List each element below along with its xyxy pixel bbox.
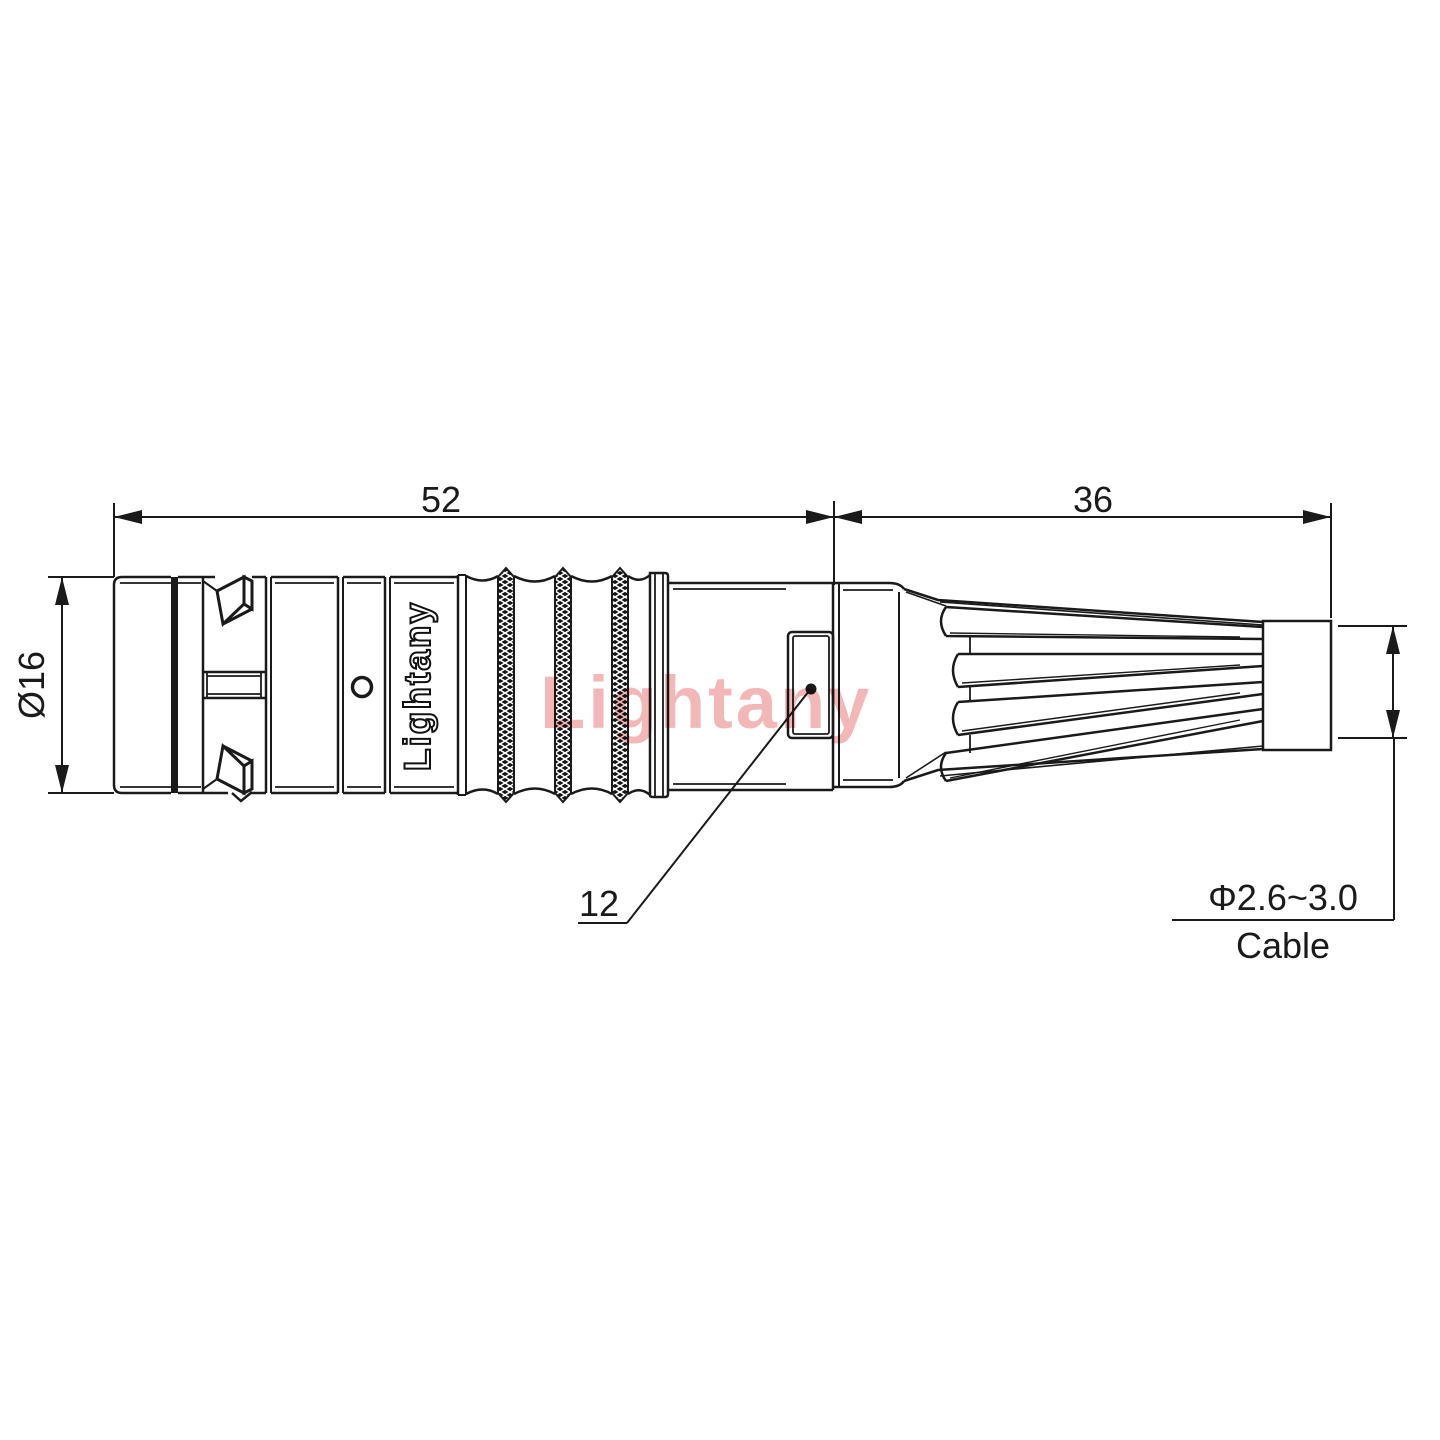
brand-vertical-text: Lightany bbox=[397, 601, 438, 771]
arrowhead-icon bbox=[55, 577, 69, 605]
dim-label-outer-diameter: Ø16 bbox=[11, 651, 52, 719]
arrowhead-icon bbox=[55, 765, 69, 793]
dim-label-boot-length: 36 bbox=[1073, 479, 1113, 520]
fin-slot bbox=[941, 709, 1263, 781]
strain-relief-fins bbox=[904, 589, 1263, 781]
dim-label-coupling-size: 12 bbox=[579, 883, 619, 924]
arrowhead-icon bbox=[1303, 510, 1331, 524]
fin-slot bbox=[953, 654, 1263, 687]
dim-boot-length: 36 bbox=[834, 479, 1331, 618]
latch-carrier bbox=[203, 577, 271, 801]
latch-tab-top bbox=[203, 577, 252, 624]
watermark-text: Lightany bbox=[540, 660, 860, 745]
dim-label-cable-word: Cable bbox=[1236, 925, 1330, 966]
front-edge-band bbox=[171, 577, 178, 793]
technical-drawing-page: 52 36 Ø16 12 bbox=[0, 0, 1440, 1440]
arrowhead-icon bbox=[1386, 710, 1400, 738]
brand-band: Lightany bbox=[390, 575, 466, 795]
knurl-band bbox=[498, 568, 514, 802]
dim-body-length: 52 bbox=[114, 479, 834, 585]
coupling-ring bbox=[271, 577, 390, 793]
connector-front-shell bbox=[114, 577, 228, 793]
fin-slot bbox=[953, 682, 1263, 735]
arrowhead-icon bbox=[1386, 626, 1400, 654]
alignment-dot-icon bbox=[353, 678, 372, 697]
dim-outer-diameter: Ø16 bbox=[11, 577, 114, 793]
arrowhead-icon bbox=[806, 510, 834, 524]
arrowhead-icon bbox=[114, 510, 142, 524]
cable-end-block bbox=[1263, 621, 1331, 750]
dim-label-body-length: 52 bbox=[421, 479, 461, 520]
dim-label-cable-range: Φ2.6~3.0 bbox=[1208, 877, 1358, 918]
arrowhead-icon bbox=[834, 510, 862, 524]
